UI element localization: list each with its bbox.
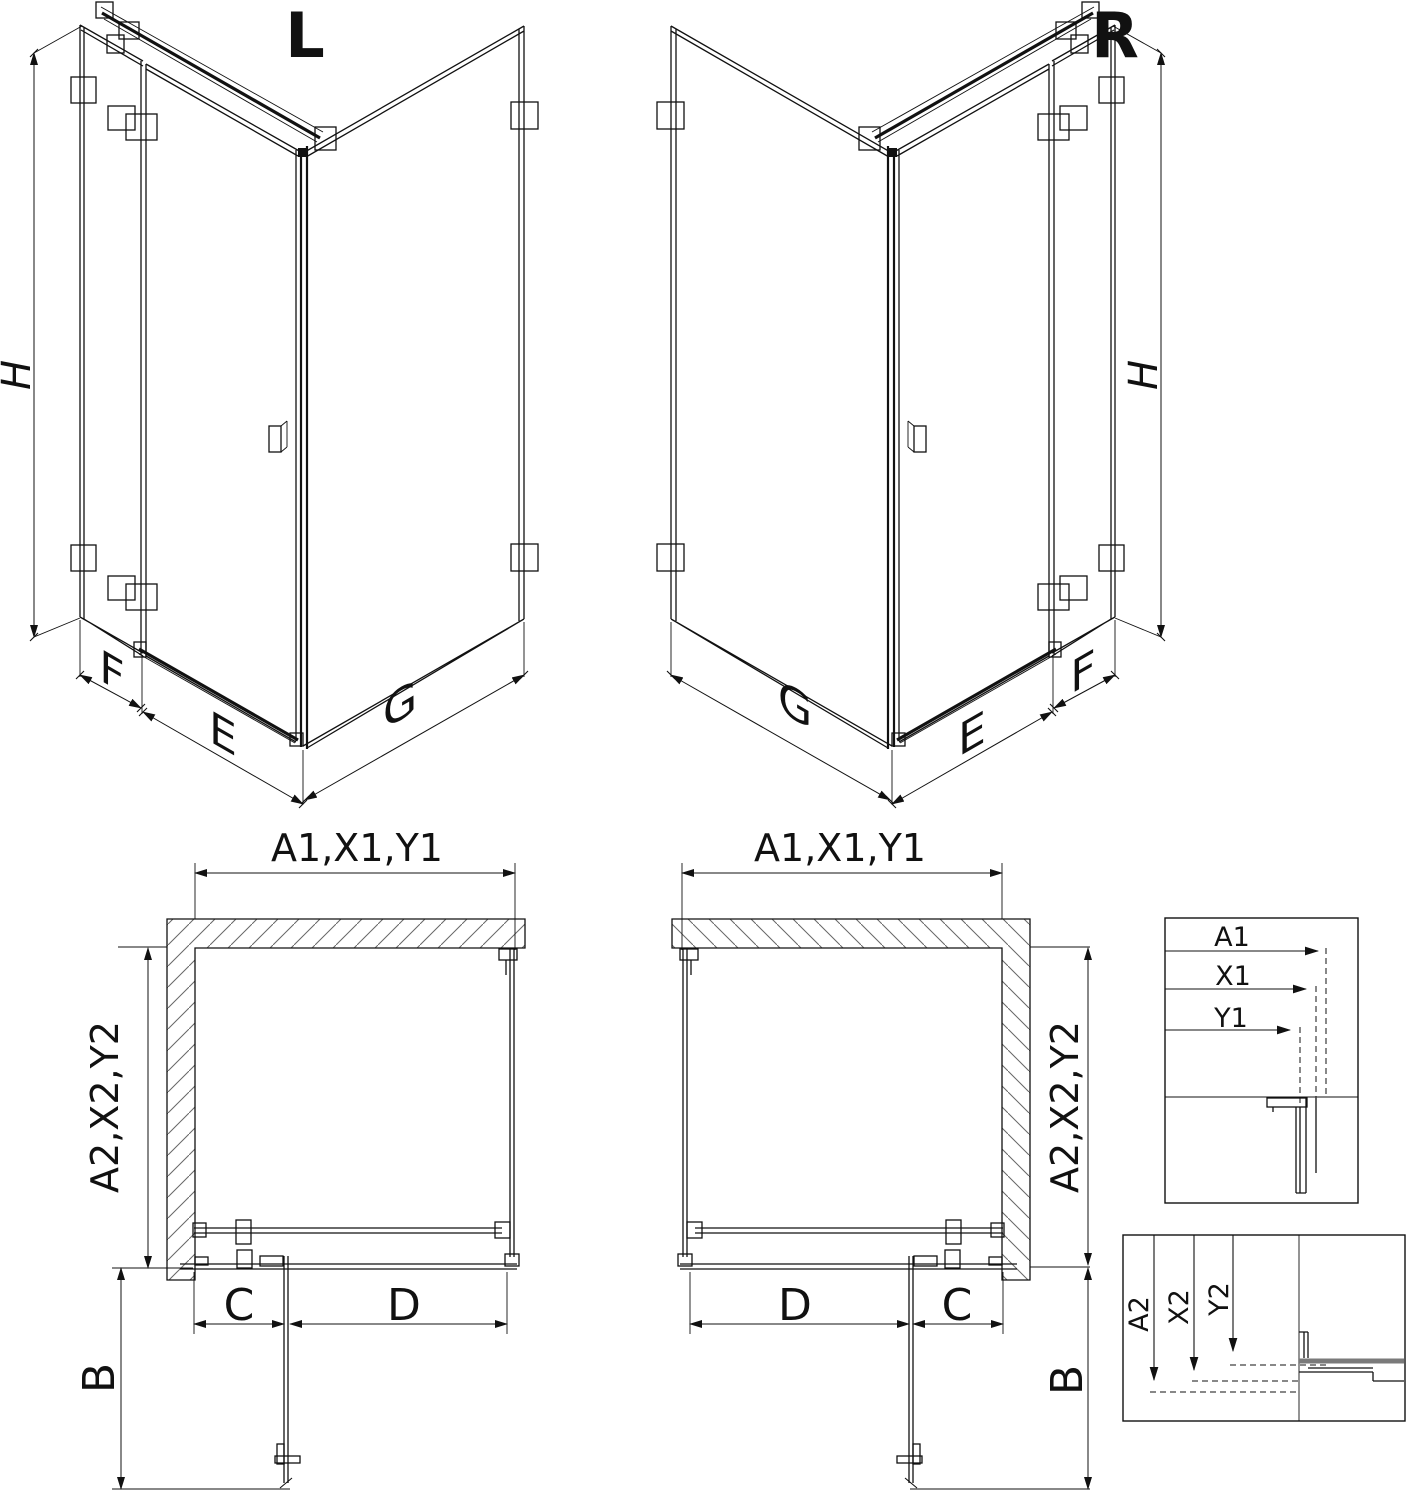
door-end-tick — [280, 1478, 292, 1488]
c-dim-label-right: C — [942, 1280, 973, 1331]
x2-label: X2 — [1164, 1289, 1195, 1325]
depth-dims-label-right: A2,X2,Y2 — [1043, 1021, 1087, 1193]
d-dim-label-left: D — [387, 1280, 421, 1331]
plan-left-artwork — [167, 919, 525, 1488]
detail-width-frame — [1165, 918, 1358, 1203]
reference-dashes-depth — [1150, 1365, 1327, 1392]
reference-dashes-width — [1300, 948, 1326, 1173]
detail-view-depth: A2 X2 Y2 — [1123, 1235, 1405, 1421]
wall-profile-section — [1267, 1098, 1316, 1193]
corner-post — [301, 146, 307, 749]
sill-plan — [180, 1264, 517, 1269]
wall-hatched — [167, 919, 525, 1280]
b-dim-label-right: B — [1042, 1365, 1093, 1395]
stabilizer-bar-plan — [194, 1228, 502, 1233]
plan-right-artwork — [672, 919, 1030, 1488]
plan-view-right: A1,X1,Y1 A2,X2,Y2 D C B — [672, 826, 1093, 1489]
depth-dims-label-left: A2,X2,Y2 — [83, 1021, 127, 1193]
door-dim-label-left: E — [209, 701, 237, 768]
detail-view-width: A1 X1 Y1 — [1165, 918, 1358, 1203]
width-dims-label-right: A1,X1,Y1 — [754, 826, 926, 870]
y2-label: Y2 — [1204, 1282, 1235, 1317]
side-panel-dim-label-left: F — [99, 640, 124, 706]
return-panel-dim-label-right: G — [778, 670, 812, 741]
return-panel-dim-label-left: G — [383, 670, 417, 741]
b-dim-label-left: B — [74, 1363, 125, 1393]
iso-view-left: L H F E G — [0, 0, 538, 808]
a1-label: A1 — [1214, 922, 1250, 953]
detail-depth-frame — [1123, 1235, 1405, 1421]
door-dim-label-right: E — [958, 701, 986, 768]
y1-label: Y1 — [1213, 1003, 1248, 1034]
iso-view-right: R H F E G — [657, 0, 1167, 808]
shower-enclosure-diagram: L H F E G R H F E G — [0, 0, 1416, 1499]
side-panel-dim-label-right: F — [1070, 640, 1095, 706]
height-dim-label-left: H — [0, 360, 40, 390]
bar-fittings-plan — [193, 1220, 510, 1268]
floor-profile-section — [1299, 1332, 1404, 1381]
height-dim-label-right: H — [1121, 360, 1167, 390]
corner-joint — [298, 148, 307, 157]
technical-drawing-page: L H F E G R H F E G — [0, 0, 1416, 1499]
variant-label-right: R — [1091, 0, 1139, 72]
a2-label: A2 — [1124, 1296, 1155, 1332]
x1-label: X1 — [1215, 961, 1251, 992]
door-hinges — [108, 106, 157, 610]
fixed-panel-plan — [510, 948, 514, 1257]
variant-label-left: L — [285, 0, 325, 72]
width-dims-label-left: A1,X1,Y1 — [271, 826, 443, 870]
d-dim-label-right: D — [778, 1280, 812, 1331]
c-dim-label-left: C — [224, 1280, 255, 1331]
plan-view-left: A1,X1,Y1 A2,X2,Y2 C D B — [74, 826, 525, 1489]
door-handle — [269, 421, 287, 452]
